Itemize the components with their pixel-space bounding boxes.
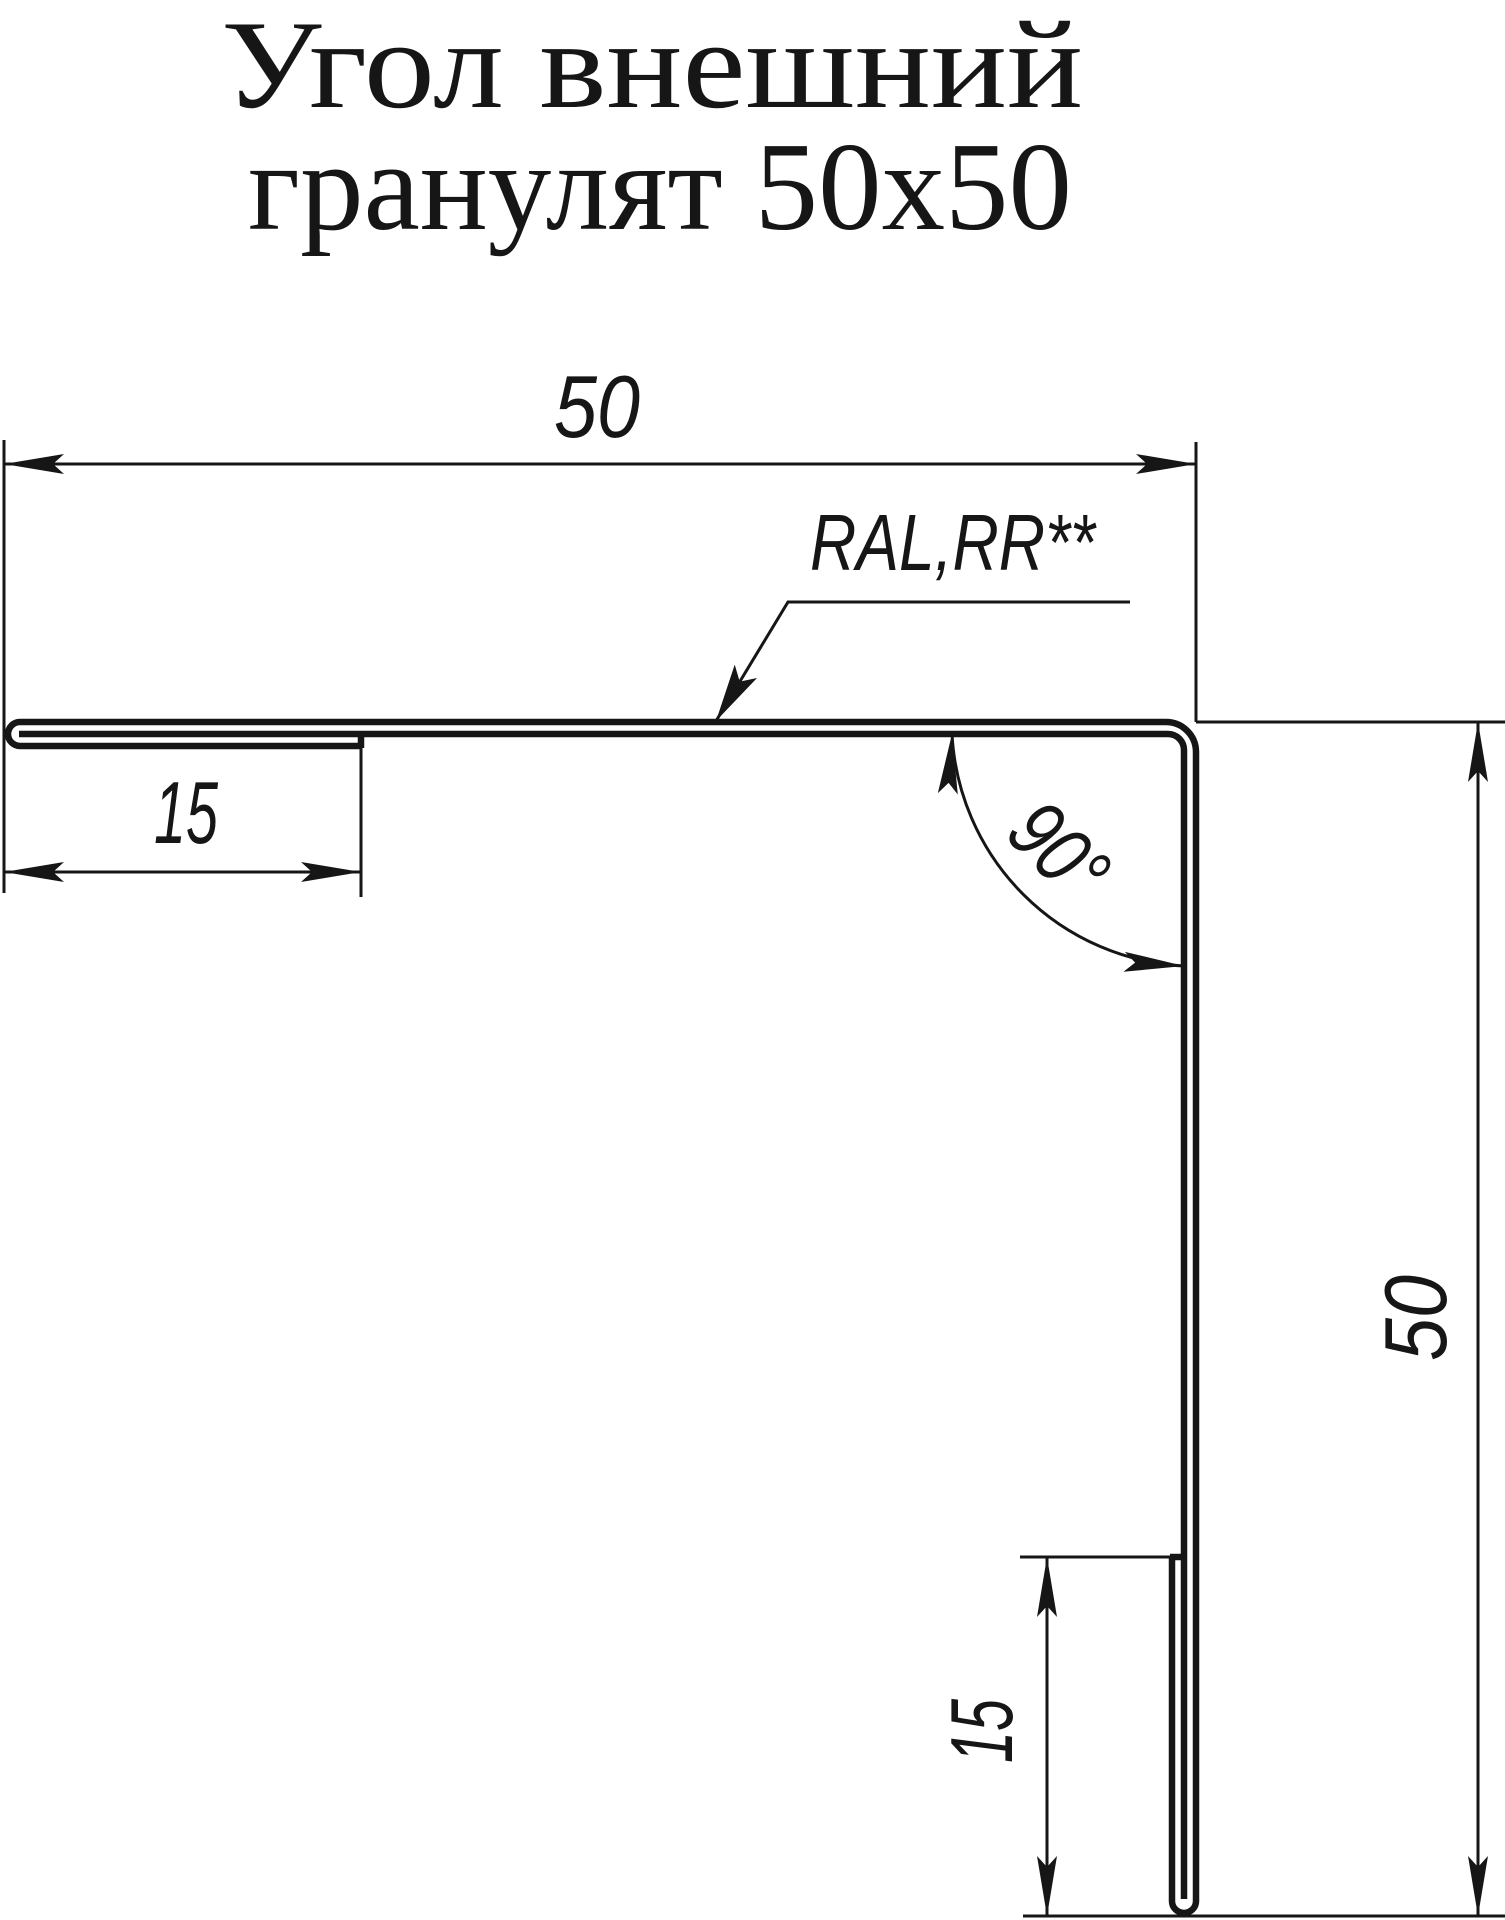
technical-drawing-canvas: Угол внешний гранулят 50x50 50 15 50 15 … (0, 0, 1505, 1920)
dim-left-hem-label: 15 (154, 763, 219, 862)
dim-bottom-hem-label: 15 (932, 1698, 1031, 1763)
coating-label: RAL,RR** (810, 498, 1097, 587)
dim-right-label: 50 (1366, 1275, 1465, 1361)
drawing-sheet: Угол внешний гранулят 50x50 50 15 50 15 … (0, 0, 1505, 1920)
dim-top-label: 50 (554, 357, 640, 456)
page-title-line1: Угол внешний (221, 0, 1083, 135)
leader-arrow-coating (705, 665, 757, 728)
angle-arc-arrow-right (1123, 952, 1184, 976)
angle-arc-arrow-top (938, 733, 962, 794)
leader-line-coating (716, 602, 1130, 721)
page-title-line2: гранулят 50x50 (248, 118, 1072, 257)
angle-label: 90° (991, 782, 1128, 919)
